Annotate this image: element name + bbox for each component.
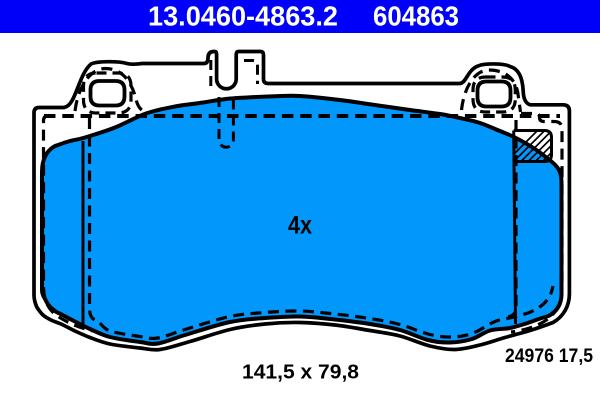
svg-text:604863: 604863 (373, 1, 459, 32)
svg-text:141,5 x 79,8: 141,5 x 79,8 (242, 361, 359, 384)
svg-text:13.0460-4863.2: 13.0460-4863.2 (148, 1, 338, 32)
svg-text:4x: 4x (288, 212, 312, 240)
svg-text:24976 17,5: 24976 17,5 (505, 345, 593, 367)
